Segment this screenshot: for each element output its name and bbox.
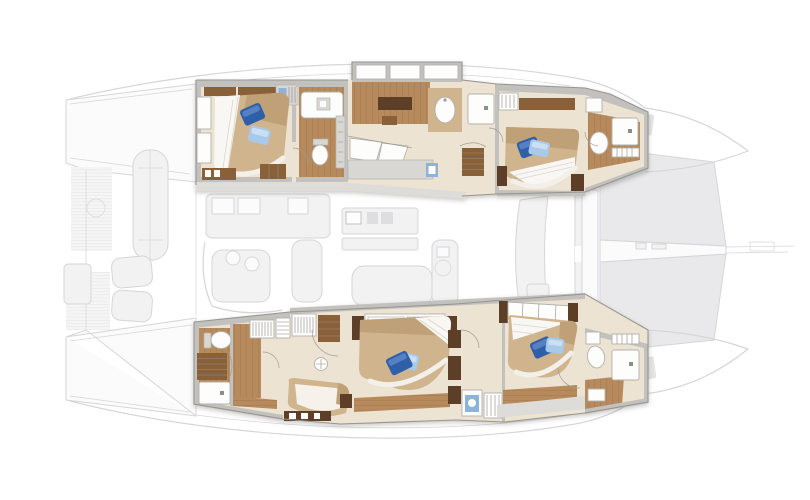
bath-mat [588,389,605,401]
saloon-bench-ghost [292,240,322,302]
toilet [590,132,608,154]
stove-ghost-2 [381,212,393,224]
tv-cabinet [378,97,412,110]
upper-hull-accommodation [196,62,648,199]
bathtub [428,88,462,132]
armchair-cushion-ghost [437,247,449,257]
towel-shelf [612,334,639,344]
shower [468,94,494,124]
saloon-ghost [203,194,458,313]
galley-appliance-ghost-2 [238,198,260,214]
teak-platform-upper [71,167,112,251]
hull-window [197,97,211,129]
galley-appliance-ghost-3 [288,198,308,214]
wardrobe [499,93,518,110]
shower [199,382,230,404]
island-sink-ghost [346,212,361,224]
toilet [312,139,328,165]
shelves [318,315,340,342]
upper-aft-bathroom [293,80,348,182]
vanity-counter [348,160,438,179]
steps [260,164,286,179]
cockpit-table-ghost [64,264,91,304]
plate-ghost-2 [245,257,259,271]
cockpit-chair-ghost-2 [111,290,153,323]
cockpit-chair-ghost [111,255,153,288]
dining-table-ghost [212,250,270,302]
coachroof-window [356,65,386,79]
coachroof-window-3 [424,65,458,79]
washing-machine [462,390,482,416]
galley-appliance-ghost [212,198,234,214]
shower [612,350,639,380]
overhead-shelf [204,87,236,96]
double-bed [214,93,289,174]
deck-plan-svg [0,0,810,500]
forward-door-gap [575,246,582,262]
washbasin [301,92,343,118]
light-blue-pillow [545,337,565,354]
side-table [340,394,352,408]
island-counter-ghost [342,238,418,250]
deck-plan [0,0,810,500]
tender-ghost [133,150,168,260]
bathroom-door [586,98,602,112]
walk-in-wardrobe [250,318,290,338]
saloon-sofa-ghost [352,266,432,306]
bowsprit-lines [726,246,794,253]
wardrobe-column [448,330,461,404]
plate-ghost [226,251,240,265]
stairs [197,352,232,380]
nightstand [497,166,507,186]
sideboard [202,168,236,180]
hull-window-2 [197,133,211,163]
coachroof-window-2 [390,65,420,79]
anchor-fitting-ghost [652,244,666,249]
stool [315,358,328,371]
overhead-shelf [519,98,575,110]
low-table [382,116,397,125]
nightstand [499,301,508,323]
toilet [204,332,231,349]
nightstand-2 [571,174,584,191]
bathroom-door [586,332,600,344]
nightstand-2 [568,303,578,322]
shower [612,118,638,145]
stove-ghost [367,212,378,224]
towel-shelf [612,148,639,157]
windlass-ghost [636,243,646,249]
